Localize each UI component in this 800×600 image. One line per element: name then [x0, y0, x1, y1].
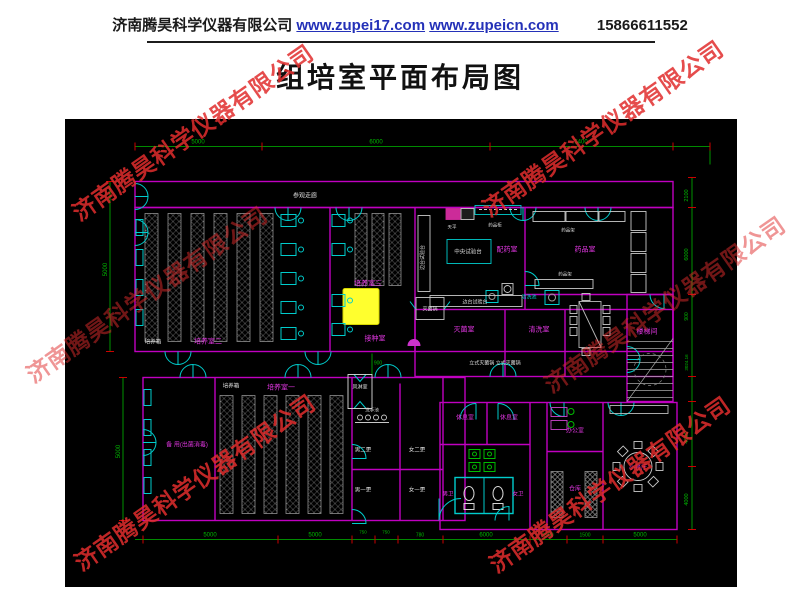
floorplan-label: 边台试验台 — [462, 299, 487, 306]
floorplan-label: 接种室 — [365, 334, 386, 343]
floorplan-label: 培养室二 — [194, 337, 222, 346]
floorplan-label: 女二更 — [409, 446, 426, 454]
floorplan-label: 5000 — [203, 533, 217, 539]
floorplan-label: 立式灭菌锅 立式灭菌锅 — [469, 360, 520, 367]
floorplan-label: 6000 — [479, 533, 493, 539]
floorplan-label: 5000 — [308, 533, 322, 539]
floorplan-svg: 参观走廊培养室二培养箱培养室三接种室配药室药品室灭菌室清洗室楼梯间培养室一培养箱… — [65, 119, 737, 587]
highlight-square — [343, 289, 379, 325]
company-name: 济南腾昊科学仪器有限公司 — [112, 17, 292, 34]
floorplan-label: 4000 — [684, 431, 690, 443]
floorplan-label: 5000 — [191, 140, 205, 146]
floorplan-label: 培养箱 — [223, 382, 240, 390]
header-divider — [147, 41, 655, 43]
floorplan-label: 培养室三 — [354, 279, 382, 288]
floorplan-label: 清洗室 — [529, 325, 550, 334]
floorplan-label: 900 — [684, 312, 690, 321]
floorplan-label: 5000 — [633, 533, 647, 539]
floorplan-label: 休息室 — [500, 414, 518, 422]
floorplan-label: 办公室 — [566, 427, 584, 435]
page: 济南腾昊科学仪器有限公司 www.zupei17.com www.zupeicn… — [0, 0, 800, 600]
floorplan-label: 女卫 — [512, 490, 524, 498]
floorplan-label: 药品架 — [558, 271, 572, 278]
floorplan-label: 药品架 — [561, 227, 575, 234]
floorplan-label: 中央试验台 — [454, 248, 482, 256]
floorplan-label: 750 — [382, 530, 390, 535]
floorplan-label: 培养箱 — [145, 338, 162, 346]
floorplan-label: 女一更 — [409, 486, 426, 494]
floorplan-label: 灭菌室 — [454, 325, 475, 334]
floorplan-label: 6000 — [369, 140, 383, 146]
floorplan-label: 750 — [359, 530, 367, 535]
floorplan-label: 1500 — [542, 533, 553, 539]
ac-units — [281, 215, 353, 340]
floorplan-label: 清洗池 — [521, 294, 536, 301]
floorplan-label: 风淋室 — [352, 384, 367, 391]
page-header: 济南腾昊科学仪器有限公司 www.zupei17.com www.zupeicn… — [0, 14, 800, 35]
floorplan-label: 3024.16 — [684, 354, 689, 371]
floorplan-label: 5400 — [574, 140, 588, 146]
floorplan-label: 药品柜 — [488, 222, 502, 229]
toilet-stalls — [455, 478, 513, 514]
page-title: 组培室平面布局图 — [0, 56, 800, 96]
site-link-2[interactable]: www.zupeicn.com — [429, 17, 558, 34]
floorplan-label: 4000 — [684, 493, 690, 505]
floorplan-label: 6000 — [684, 248, 690, 260]
fan-symbol — [408, 340, 420, 346]
floorplan-label: 男一更 — [355, 487, 372, 494]
phone-number: 15866611552 — [597, 17, 688, 34]
floorplan-label: 配药室 — [497, 245, 518, 254]
floorplan-label: 天平 — [448, 225, 457, 231]
green-fixtures — [469, 409, 574, 472]
floorplan-label: 休息室 — [456, 414, 474, 422]
floorplan-canvas: 参观走廊培养室二培养箱培养室三接种室配药室药品室灭菌室清洗室楼梯间培养室一培养箱… — [65, 119, 737, 587]
floorplan-label: 参观走廊 — [293, 192, 317, 200]
floorplan-label: 培养室一 — [267, 383, 295, 392]
floorplan-label: 灭菌锅 — [422, 306, 437, 313]
floorplan-label: 仓库 — [569, 485, 581, 493]
floorplan-label: 2100 — [684, 189, 690, 201]
floorplan-label: 男二更 — [355, 447, 372, 454]
site-link-1[interactable]: www.zupei17.com — [296, 17, 425, 34]
floorplan-label: 5000 — [116, 444, 122, 458]
floorplan-label: 边台试验台 — [419, 245, 426, 270]
floorplan-label: 小餐厅 — [629, 464, 647, 472]
floorplan-label: 780 — [416, 533, 425, 539]
floorplan-label: 洗手池 — [365, 407, 379, 414]
floorplan-label: 900 — [374, 361, 383, 367]
floorplan-label: 楼梯间 — [637, 327, 658, 336]
floorplan-label: 药品室 — [575, 245, 596, 254]
floorplan-label: 1500 — [579, 533, 590, 539]
floorplan-label: 5000 — [103, 262, 109, 276]
rack-layer — [145, 214, 597, 518]
floorplan-label: 男卫 — [442, 491, 454, 498]
floorplan-label: 备 用(出菌消毒) — [166, 441, 208, 449]
